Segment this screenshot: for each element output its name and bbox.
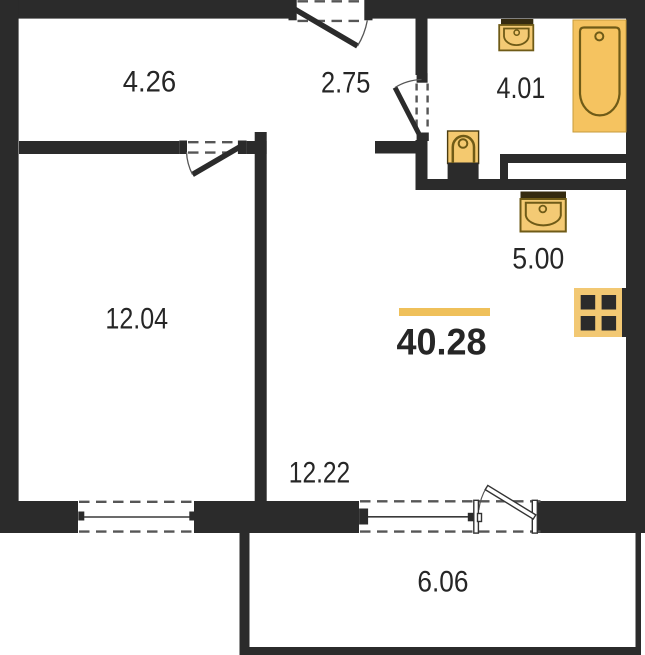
- svg-text:40.28: 40.28: [397, 322, 487, 363]
- svg-text:2.75: 2.75: [321, 66, 370, 99]
- svg-text:12.22: 12.22: [289, 457, 350, 490]
- svg-text:12.04: 12.04: [105, 302, 168, 335]
- svg-text:5.00: 5.00: [512, 242, 564, 275]
- svg-text:6.06: 6.06: [417, 565, 468, 598]
- svg-text:4.26: 4.26: [123, 65, 177, 98]
- svg-text:4.01: 4.01: [497, 72, 546, 105]
